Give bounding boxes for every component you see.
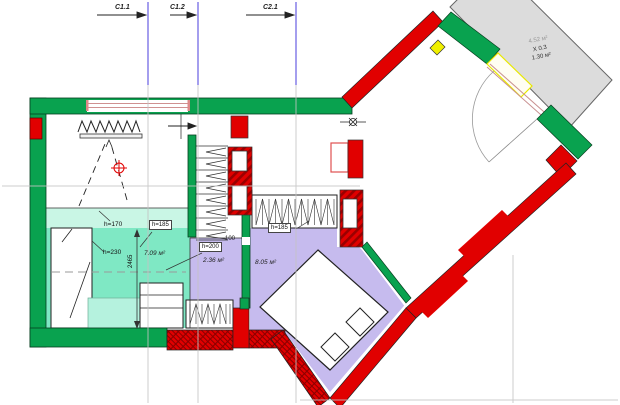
area-label-bedroom: 8.05 м² — [255, 259, 276, 266]
dimension-label-2465: 2465 — [128, 255, 134, 268]
projection-dashed-lines — [79, 144, 127, 206]
area-label-living-room: 7.09 м² — [144, 250, 165, 257]
small-wardrobe — [186, 300, 233, 328]
height-label-h200: h=200 — [199, 242, 222, 252]
height-label-h230: h=230 — [103, 249, 121, 256]
radiator-zigzag — [78, 121, 142, 147]
living-room-dresser — [140, 283, 183, 328]
arrow-tick — [106, 140, 112, 147]
height-label-h185-bedroom: h=185 — [268, 223, 291, 233]
middle-room-furniture — [331, 143, 348, 172]
height-label-h170: h=170 — [104, 221, 122, 228]
shelf-bar — [80, 134, 142, 138]
height-label-h185-living: h=185 — [149, 220, 172, 230]
section-label-c11: C1.1 — [115, 4, 130, 11]
left-wall-red-patch — [30, 118, 42, 139]
area-label-hall: 2.36 м² — [203, 257, 224, 264]
living-room-rug — [88, 298, 140, 328]
big-wardrobe — [252, 195, 337, 228]
staircase — [196, 146, 228, 240]
dimension-label-100: 100 — [225, 236, 235, 242]
section-arrows — [97, 12, 294, 18]
light-point-symbol — [111, 160, 127, 176]
section-label-c21: C2.1 — [263, 4, 278, 11]
living-room-bed — [51, 228, 92, 328]
window-top-left — [86, 100, 190, 112]
corridor-wall-hatched-left — [228, 116, 252, 215]
floor-plan-canvas: C1.1 C1.2 C2.1 h=170 h=185 h=230 7.09 м²… — [0, 0, 620, 405]
section-label-c12: C1.2 — [170, 4, 185, 11]
